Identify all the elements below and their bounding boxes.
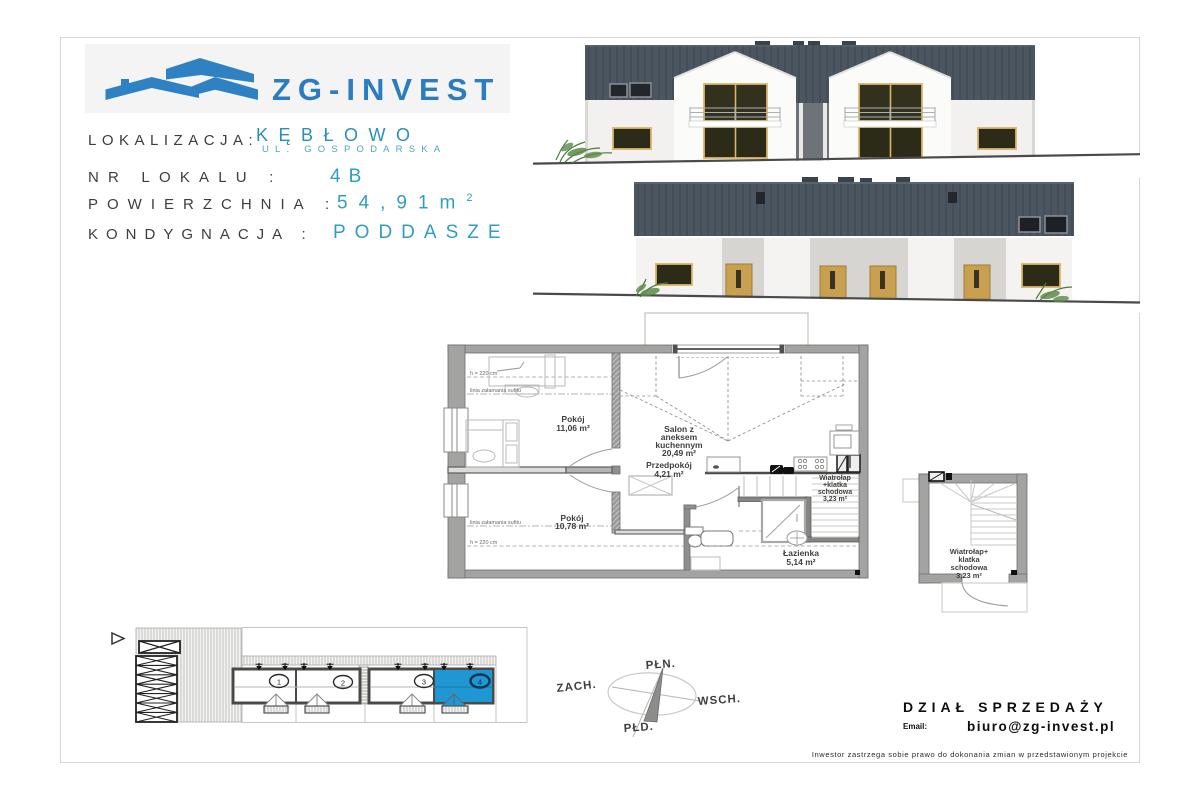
svg-text:ZACH.: ZACH. bbox=[556, 679, 597, 695]
svg-text:h = 220 cm: h = 220 cm bbox=[470, 371, 498, 377]
svg-text:5,14 m²: 5,14 m² bbox=[786, 557, 815, 567]
svg-text:1: 1 bbox=[277, 678, 281, 687]
svg-text:h = 220 cm: h = 220 cm bbox=[470, 540, 498, 546]
svg-text:Wiatrołap: Wiatrołap bbox=[819, 475, 851, 482]
svg-text:4: 4 bbox=[478, 678, 482, 687]
svg-text:4,21 m²: 4,21 m² bbox=[654, 469, 683, 479]
svg-text:2: 2 bbox=[341, 679, 345, 688]
svg-text:PŁD.: PŁD. bbox=[623, 721, 654, 735]
svg-text:3,23 m²: 3,23 m² bbox=[823, 496, 848, 503]
svg-text:3,23 m²: 3,23 m² bbox=[956, 571, 982, 580]
svg-text:linia załamania sufitu: linia załamania sufitu bbox=[470, 520, 521, 526]
svg-text:schodowa: schodowa bbox=[818, 489, 852, 496]
svg-text:WSCH.: WSCH. bbox=[697, 693, 741, 708]
svg-text:+klatka: +klatka bbox=[823, 482, 847, 489]
svg-text:3: 3 bbox=[422, 678, 426, 687]
svg-text:20,49 m²: 20,49 m² bbox=[662, 448, 696, 458]
svg-text:linia załamania sufitu: linia załamania sufitu bbox=[470, 388, 521, 394]
svg-text:11,06 m²: 11,06 m² bbox=[556, 423, 590, 433]
svg-text:PŁN.: PŁN. bbox=[645, 658, 676, 672]
svg-text:10,78 m²: 10,78 m² bbox=[555, 521, 589, 531]
